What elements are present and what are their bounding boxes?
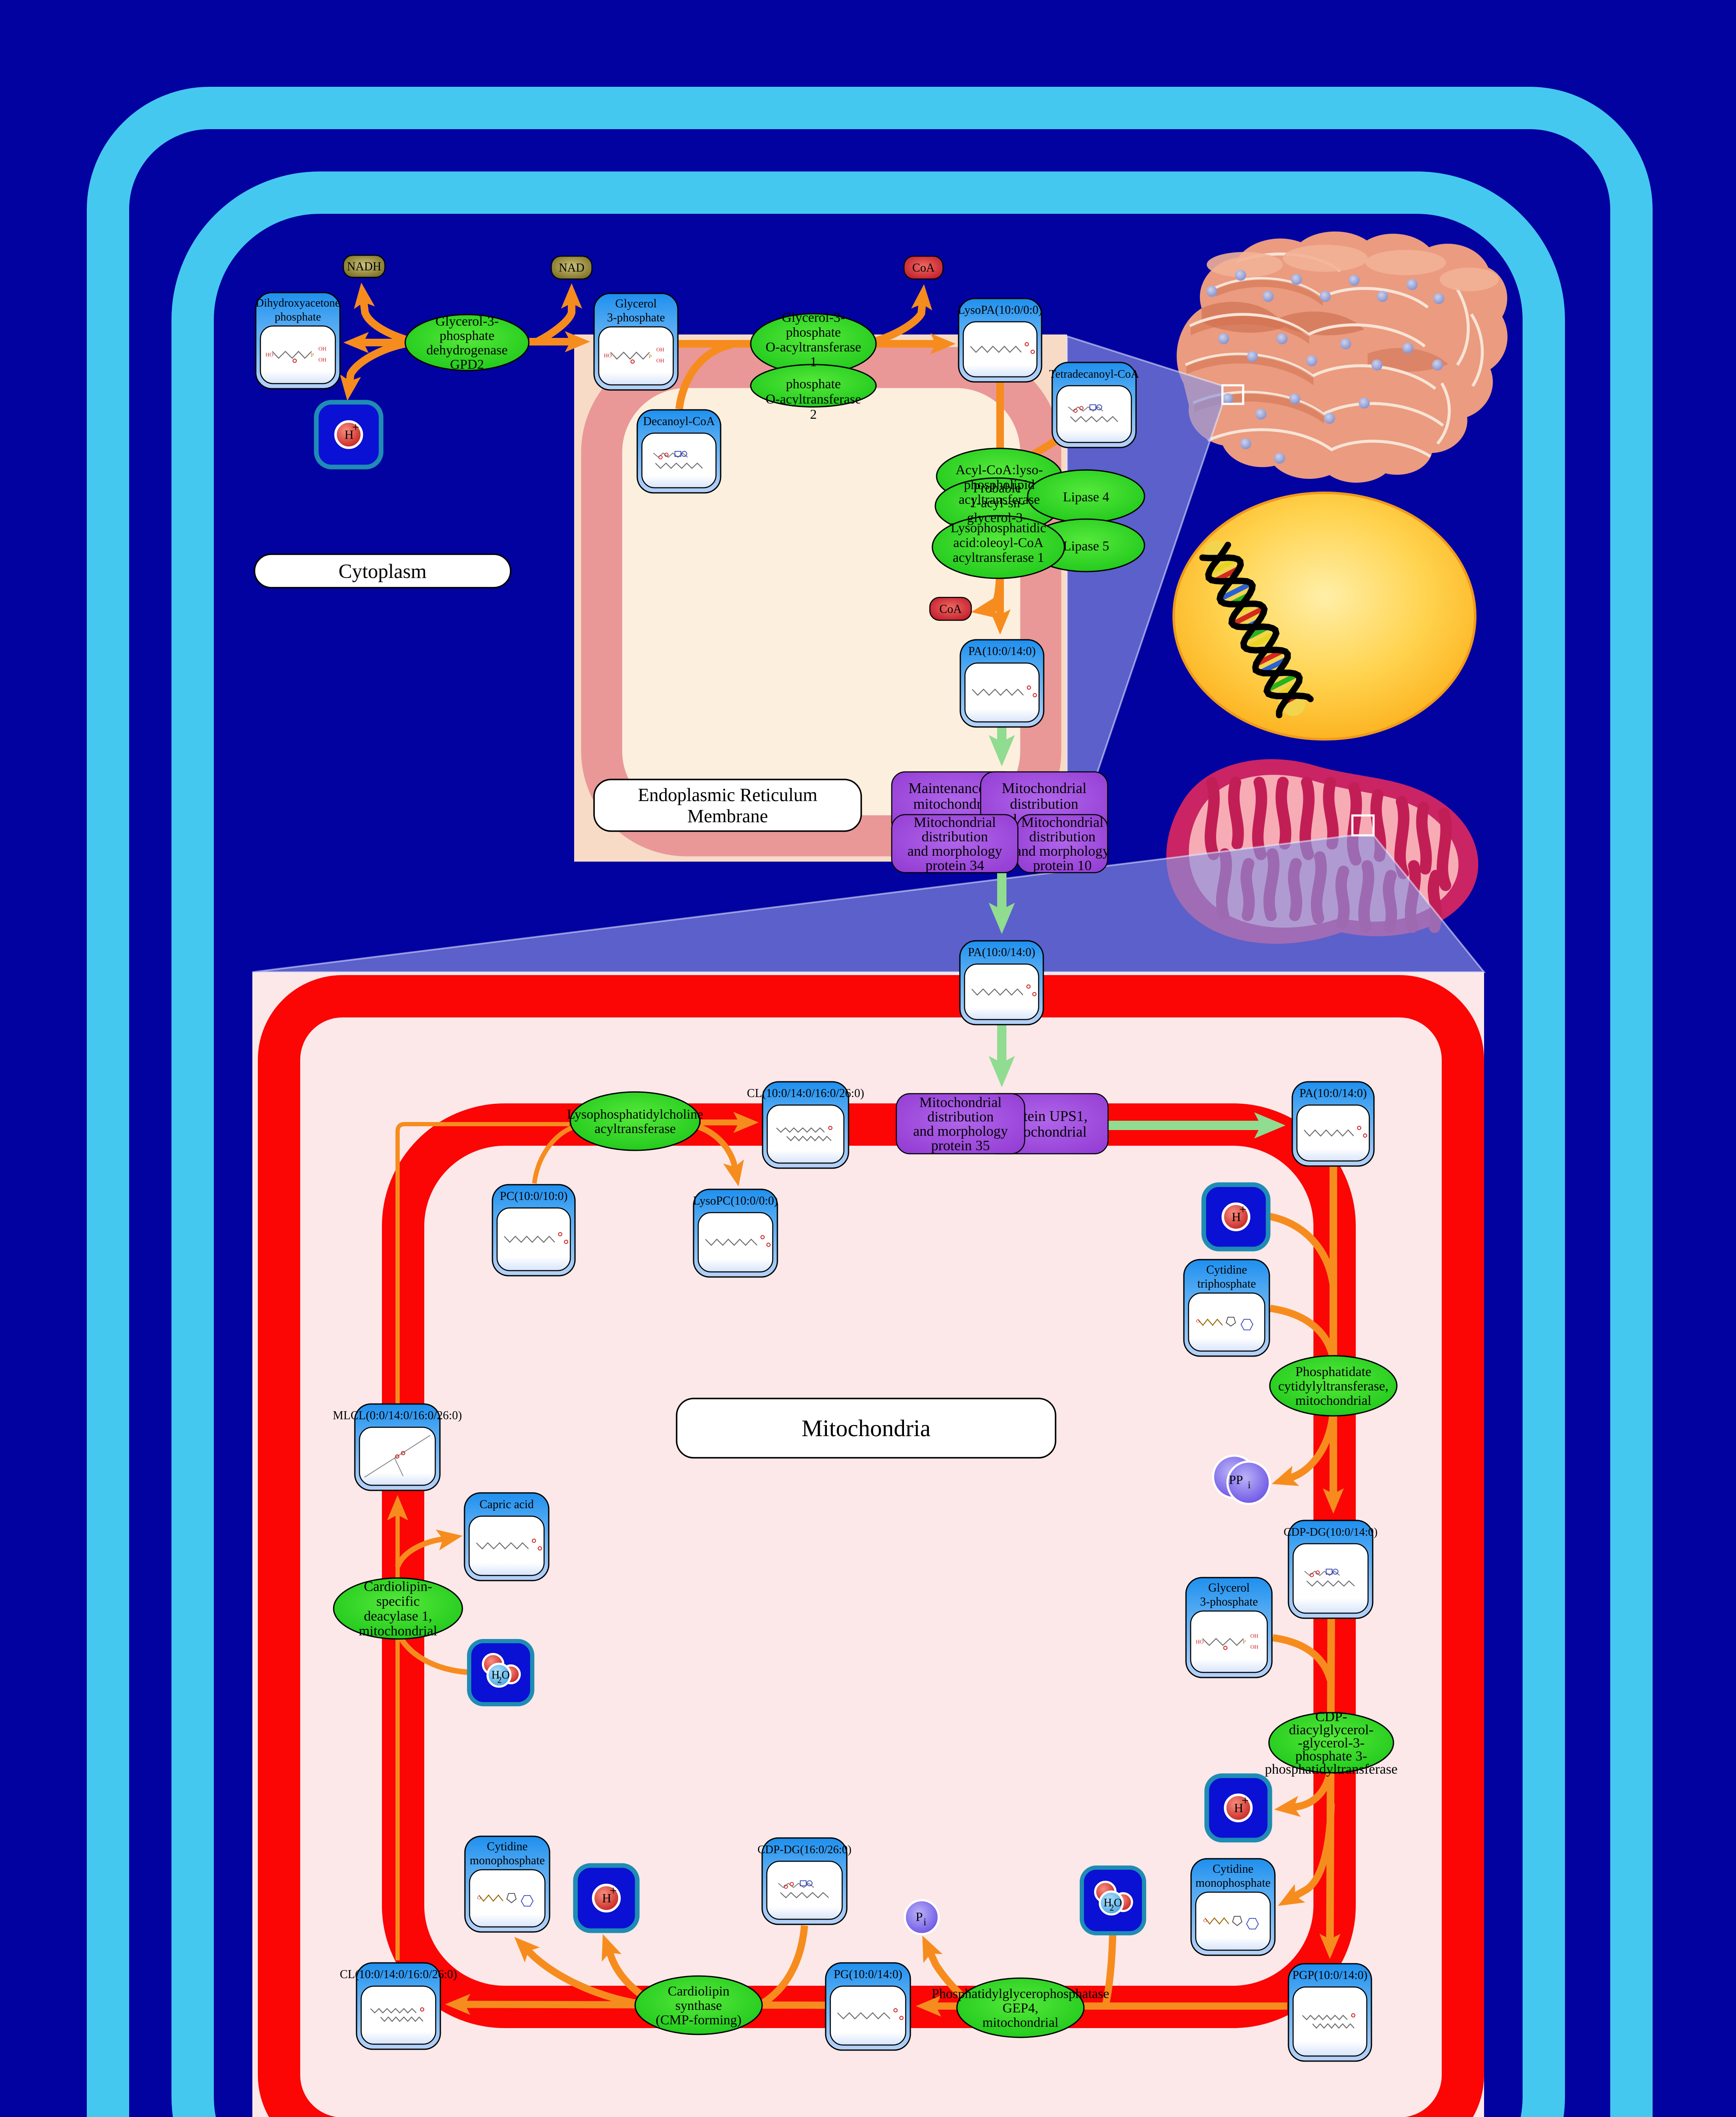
svg-text:mitochondrial: mitochondrial bbox=[1295, 1393, 1371, 1408]
svg-text:Glycerol: Glycerol bbox=[1208, 1581, 1250, 1595]
svg-text:acid:oleoyl-CoA: acid:oleoyl-CoA bbox=[953, 535, 1043, 550]
svg-text:LysoPC(10:0/0:0): LysoPC(10:0/0:0) bbox=[693, 1194, 778, 1208]
svg-text:Mitochondria: Mitochondria bbox=[802, 1415, 931, 1442]
svg-text:Lipase 5: Lipase 5 bbox=[1063, 538, 1109, 553]
svg-text:P: P bbox=[1243, 1639, 1246, 1645]
svg-text:cytidylyltransferase,: cytidylyltransferase, bbox=[1278, 1378, 1388, 1393]
svg-text:NADH: NADH bbox=[347, 260, 381, 274]
svg-text:+: + bbox=[1242, 1794, 1249, 1807]
svg-text:O: O bbox=[502, 1669, 510, 1681]
svg-text:NAD: NAD bbox=[559, 262, 585, 275]
svg-text:O: O bbox=[477, 1895, 481, 1901]
svg-text:Probable: Probable bbox=[973, 480, 1021, 495]
svg-text:Cytoplasm: Cytoplasm bbox=[338, 560, 426, 583]
svg-text:phosphate: phosphate bbox=[786, 376, 841, 391]
svg-text:2: 2 bbox=[810, 406, 817, 422]
svg-text:3-phosphate: 3-phosphate bbox=[1200, 1595, 1258, 1608]
svg-text:P: P bbox=[311, 352, 314, 358]
svg-text:OH: OH bbox=[318, 345, 326, 352]
svg-text:distribution: distribution bbox=[1029, 829, 1096, 845]
svg-text:dehydrogenase: dehydrogenase bbox=[426, 342, 508, 357]
svg-text:Cytidine: Cytidine bbox=[1206, 1263, 1247, 1277]
svg-text:(CMP-forming): (CMP-forming) bbox=[656, 2012, 742, 2027]
svg-text:deacylase 1,: deacylase 1, bbox=[364, 1609, 432, 1624]
svg-text:P: P bbox=[916, 1910, 923, 1924]
svg-text:Cytidine: Cytidine bbox=[1213, 1863, 1253, 1876]
svg-text:1: 1 bbox=[810, 354, 817, 369]
svg-text:distribution: distribution bbox=[927, 1109, 994, 1125]
svg-text:protein 34: protein 34 bbox=[926, 858, 984, 873]
svg-text:i: i bbox=[923, 1917, 926, 1928]
svg-text:phosphate: phosphate bbox=[786, 324, 841, 340]
svg-text:mitochondrial: mitochondrial bbox=[359, 1624, 437, 1639]
svg-text:OH: OH bbox=[656, 357, 664, 364]
svg-text:GPD2: GPD2 bbox=[450, 357, 484, 372]
svg-text:O-acyltransferase: O-acyltransferase bbox=[766, 391, 861, 406]
svg-text:+: + bbox=[1239, 1202, 1247, 1216]
svg-text:P: P bbox=[649, 353, 652, 359]
svg-text:and morphology: and morphology bbox=[1015, 843, 1110, 859]
svg-text:acyltransferase 1: acyltransferase 1 bbox=[953, 550, 1044, 565]
svg-text:monophosphate: monophosphate bbox=[470, 1854, 545, 1867]
svg-text:Mitochondrial: Mitochondrial bbox=[1002, 780, 1087, 796]
svg-text:CDP-DG(16:0/26:0): CDP-DG(16:0/26:0) bbox=[757, 1843, 851, 1856]
svg-text:+: + bbox=[352, 420, 359, 434]
svg-text:Cardiolipin-: Cardiolipin- bbox=[364, 1579, 432, 1595]
svg-text:Cytidine: Cytidine bbox=[487, 1840, 528, 1853]
svg-text:O: O bbox=[1114, 1896, 1122, 1909]
svg-text:Glycerol: Glycerol bbox=[615, 297, 657, 310]
svg-text:synthase: synthase bbox=[675, 1998, 722, 2013]
svg-text:Glycerol-3-: Glycerol-3- bbox=[782, 310, 845, 325]
svg-text:Tetradecanoyl-CoA: Tetradecanoyl-CoA bbox=[1049, 368, 1139, 380]
svg-text:OH: OH bbox=[1250, 1644, 1258, 1650]
svg-text:HO: HO bbox=[604, 352, 612, 359]
svg-text:MLCL(0:0/14:0/16:0/26:0): MLCL(0:0/14:0/16:0/26:0) bbox=[333, 1409, 462, 1422]
svg-text:PC(10:0/10:0): PC(10:0/10:0) bbox=[500, 1190, 567, 1203]
svg-text:protein 10: protein 10 bbox=[1033, 858, 1092, 873]
svg-text:CoA: CoA bbox=[940, 603, 962, 616]
svg-text:OH: OH bbox=[318, 357, 326, 363]
svg-text:OH: OH bbox=[656, 346, 664, 353]
svg-text:Phosphatidylglycerophosphatase: Phosphatidylglycerophosphatase bbox=[932, 1986, 1109, 2001]
svg-text:PG(10:0/14:0): PG(10:0/14:0) bbox=[834, 1968, 902, 1981]
svg-text:distribution: distribution bbox=[922, 829, 988, 845]
svg-text:and morphology: and morphology bbox=[907, 843, 1002, 859]
svg-text:GEP4,: GEP4, bbox=[1003, 2000, 1038, 2015]
svg-text:Lysophosphatidic: Lysophosphatidic bbox=[951, 520, 1046, 535]
svg-text:Membrane: Membrane bbox=[687, 806, 768, 826]
svg-text:3-phosphate: 3-phosphate bbox=[607, 311, 665, 324]
svg-text:specific: specific bbox=[376, 1594, 420, 1609]
svg-text:2: 2 bbox=[1110, 1903, 1114, 1913]
svg-text:+: + bbox=[610, 1884, 617, 1898]
svg-text:Phosphatidate: Phosphatidate bbox=[1295, 1364, 1371, 1379]
svg-text:CL(10:0/14:0/16:0/26:0): CL(10:0/14:0/16:0/26:0) bbox=[340, 1968, 457, 1981]
svg-text:HO: HO bbox=[265, 351, 274, 358]
svg-text:mitochondrial: mitochondrial bbox=[982, 2015, 1059, 2030]
svg-text:HO: HO bbox=[1196, 1639, 1204, 1645]
svg-text:O: O bbox=[1203, 1918, 1207, 1924]
svg-text:and morphology: and morphology bbox=[913, 1124, 1008, 1139]
svg-text:Endoplasmic Reticulum: Endoplasmic Reticulum bbox=[638, 785, 817, 805]
svg-text:PP: PP bbox=[1229, 1473, 1243, 1487]
svg-text:PA(10:0/14:0): PA(10:0/14:0) bbox=[968, 946, 1035, 959]
svg-text:1-acyl-sn-: 1-acyl-sn- bbox=[970, 495, 1025, 510]
svg-text:acyltransferase: acyltransferase bbox=[594, 1121, 676, 1136]
svg-text:PA(10:0/14:0): PA(10:0/14:0) bbox=[968, 645, 1036, 658]
svg-text:O: O bbox=[1196, 1318, 1200, 1324]
svg-text:protein 35: protein 35 bbox=[931, 1138, 990, 1154]
svg-text:LysoPA(10:0/0:0): LysoPA(10:0/0:0) bbox=[958, 304, 1042, 317]
svg-text:Glycerol-3-: Glycerol-3- bbox=[435, 313, 498, 329]
svg-text:Mitochondrial: Mitochondrial bbox=[919, 1095, 1002, 1111]
svg-text:distribution: distribution bbox=[1010, 796, 1078, 812]
svg-text:O-acyltransferase: O-acyltransferase bbox=[766, 339, 861, 354]
svg-text:triphosphate: triphosphate bbox=[1197, 1277, 1256, 1291]
svg-text:Acyl-CoA:lyso-: Acyl-CoA:lyso- bbox=[956, 462, 1043, 477]
svg-text:phosphate: phosphate bbox=[440, 328, 495, 343]
svg-text:Dihydroxyacetone: Dihydroxyacetone bbox=[256, 296, 340, 309]
svg-text:Lipase 4: Lipase 4 bbox=[1063, 489, 1109, 504]
svg-text:OH: OH bbox=[1250, 1633, 1258, 1639]
svg-text:Cardiolipin: Cardiolipin bbox=[668, 1983, 730, 1998]
svg-text:CDP-DG(10:0/14:0): CDP-DG(10:0/14:0) bbox=[1284, 1526, 1378, 1538]
svg-text:Decanoyl-CoA: Decanoyl-CoA bbox=[643, 415, 715, 428]
svg-text:Mitochondrial: Mitochondrial bbox=[1021, 815, 1104, 830]
svg-text:PGP(10:0/14:0): PGP(10:0/14:0) bbox=[1292, 1969, 1367, 1982]
svg-text:CoA: CoA bbox=[912, 262, 935, 275]
svg-text:phosphate: phosphate bbox=[275, 310, 321, 323]
svg-text:Lysophosphatidylcholine: Lysophosphatidylcholine bbox=[567, 1106, 703, 1122]
svg-text:Capric acid: Capric acid bbox=[479, 1498, 534, 1511]
svg-text:Mitochondrial: Mitochondrial bbox=[914, 815, 996, 830]
svg-text:phosphatidyltransferase: phosphatidyltransferase bbox=[1265, 1762, 1397, 1777]
svg-text:PA(10:0/14:0): PA(10:0/14:0) bbox=[1299, 1087, 1367, 1100]
svg-text:i: i bbox=[1248, 1480, 1251, 1491]
svg-text:monophosphate: monophosphate bbox=[1195, 1877, 1270, 1890]
svg-text:2: 2 bbox=[498, 1675, 502, 1685]
svg-text:CL(10:0/14:0/16:0/26:0): CL(10:0/14:0/16:0/26:0) bbox=[747, 1087, 864, 1100]
